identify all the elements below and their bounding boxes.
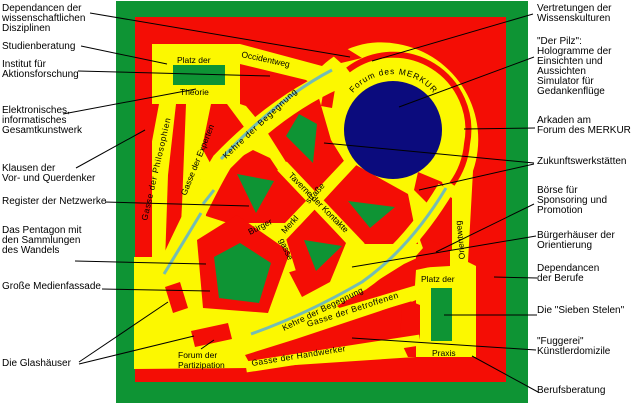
svg-text:Zukunftswerkstätten: Zukunftswerkstätten: [537, 156, 626, 167]
svg-text:Forum der: Forum der: [178, 350, 217, 360]
svg-text:der Berufe: der Berufe: [537, 273, 584, 284]
svg-text:Berufsberatung: Berufsberatung: [537, 385, 605, 396]
svg-text:Die "Sieben Stelen": Die "Sieben Stelen": [537, 305, 625, 316]
svg-text:Aktionsforschung: Aktionsforschung: [2, 69, 79, 80]
svg-text:Disziplinen: Disziplinen: [2, 23, 50, 34]
svg-text:Praxis: Praxis: [432, 348, 456, 358]
svg-text:Gesamtkunstwerk: Gesamtkunstwerk: [2, 125, 83, 136]
svg-text:Platz der: Platz der: [177, 55, 211, 65]
svg-text:Theorie: Theorie: [180, 87, 209, 97]
svg-text:Wissenskulturen: Wissenskulturen: [537, 13, 610, 24]
svg-text:Promotion: Promotion: [537, 205, 583, 216]
svg-text:Register der Netzwerke: Register der Netzwerke: [2, 196, 107, 207]
svg-text:Forum des MERKUR: Forum des MERKUR: [537, 125, 631, 136]
svg-text:Partizipation: Partizipation: [178, 360, 225, 370]
svg-text:des Wandels: des Wandels: [2, 245, 59, 256]
svg-text:Orientierung: Orientierung: [537, 240, 592, 251]
svg-text:Künstlerdomizile: Künstlerdomizile: [537, 346, 611, 357]
svg-text:Gedankenflüge: Gedankenflüge: [537, 86, 605, 97]
svg-text:Platz der: Platz der: [421, 274, 455, 284]
svg-text:Studienberatung: Studienberatung: [2, 41, 75, 52]
svg-text:Große Medienfassade: Große Medienfassade: [2, 281, 101, 292]
svg-text:Vor- und Querdenker: Vor- und Querdenker: [2, 173, 96, 184]
svg-text:Die Glashäuser: Die Glashäuser: [2, 358, 72, 369]
